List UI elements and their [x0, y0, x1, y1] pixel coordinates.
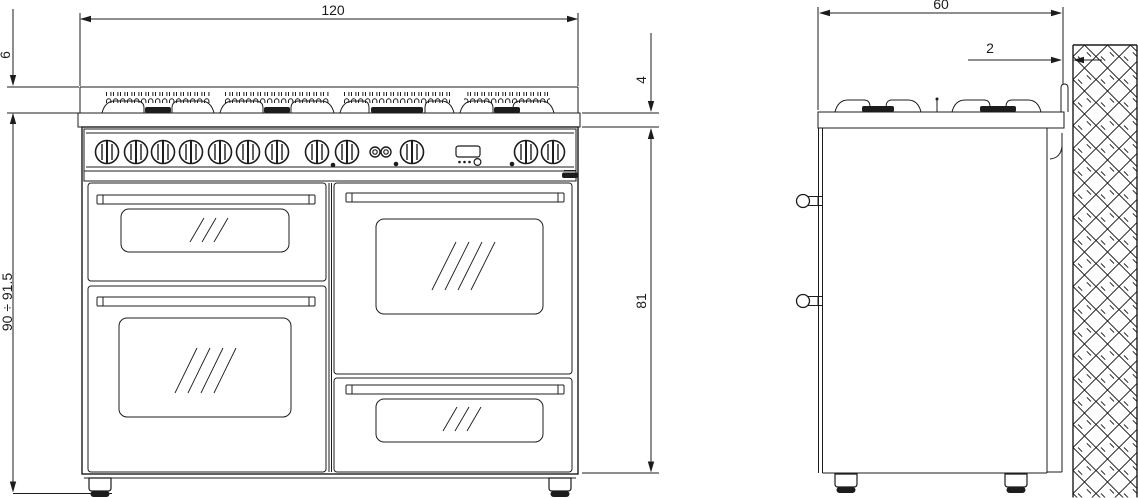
dim-hob-edge-height: 4 [582, 33, 659, 127]
front-elevation [78, 87, 580, 497]
burner-knob [237, 141, 260, 164]
dimensions: 120 6 90 ÷ 91.5 4 81 60 [0, 0, 1102, 494]
door-handle [97, 195, 315, 204]
control-panel [84, 129, 578, 181]
technical-drawing-page: 120 6 90 ÷ 91.5 4 81 60 [0, 0, 1138, 498]
foot [835, 474, 857, 493]
dim-grate-height: 6 [0, 9, 79, 87]
back-rail [1061, 84, 1068, 112]
burner-knob [125, 141, 148, 164]
dim-label-front-width: 120 [321, 2, 345, 18]
oven-door-top-left [88, 183, 326, 281]
oven-door-bottom-left [88, 286, 326, 472]
range-cooker-dimension-drawing: 120 6 90 ÷ 91.5 4 81 60 [0, 0, 1138, 498]
wall-hatch [1073, 45, 1137, 498]
burner-cap [145, 107, 171, 113]
oven-knob [542, 141, 565, 164]
cabinet-body [82, 127, 578, 474]
burner-cap [264, 107, 290, 113]
side-cabinet [819, 128, 1063, 473]
door-window [119, 318, 291, 417]
dim-front-width: 120 [80, 2, 578, 86]
dim-label-grate-height: 6 [0, 51, 13, 59]
burner-cap [494, 107, 520, 113]
door-handle [346, 385, 564, 394]
hob-front-strip [78, 113, 580, 127]
burner-cap [980, 106, 1016, 112]
dim-body-height: 81 [582, 128, 659, 473]
dim-label-hob-edge: 4 [633, 76, 649, 84]
door-window [121, 209, 289, 252]
dim-label-body-height: 81 [633, 293, 649, 309]
indicator-light [331, 163, 336, 168]
door-window [376, 399, 543, 442]
dim-label-wall-clearance: 2 [986, 40, 994, 56]
foot [1005, 474, 1027, 493]
indicator-light [510, 162, 515, 167]
cooktop-grates [78, 87, 580, 127]
door-window [376, 219, 543, 314]
ignition-buttons [370, 147, 391, 157]
oven-knob [401, 141, 424, 164]
oven-doors [88, 183, 572, 472]
burner-knob [96, 141, 119, 164]
burner-knob [180, 141, 203, 164]
dim-label-overall-height: 90 ÷ 91.5 [0, 273, 15, 331]
storage-drawer-door [334, 378, 572, 472]
oven-knob [515, 141, 538, 164]
burner-cap-wide [371, 107, 423, 113]
burner-cap [862, 106, 894, 112]
oven-knob [336, 141, 359, 164]
foot [549, 478, 571, 497]
oven-door-main [334, 183, 572, 374]
door-handle [346, 193, 564, 202]
side-elevation [797, 84, 1069, 493]
door-handle [97, 297, 315, 306]
burner-knob [152, 141, 175, 164]
side-cooktop [818, 84, 1068, 128]
base-and-feet [84, 478, 576, 497]
dim-depth: 60 [818, 0, 1063, 110]
indicator-light [394, 162, 399, 167]
wall-section [1073, 45, 1137, 498]
oven-knob [306, 141, 329, 164]
burner-knob [209, 141, 232, 164]
display-unit [456, 146, 481, 165]
burner-knob [266, 141, 289, 164]
dim-overall-height: 90 ÷ 91.5 [0, 113, 112, 494]
dim-label-depth: 60 [933, 0, 949, 12]
